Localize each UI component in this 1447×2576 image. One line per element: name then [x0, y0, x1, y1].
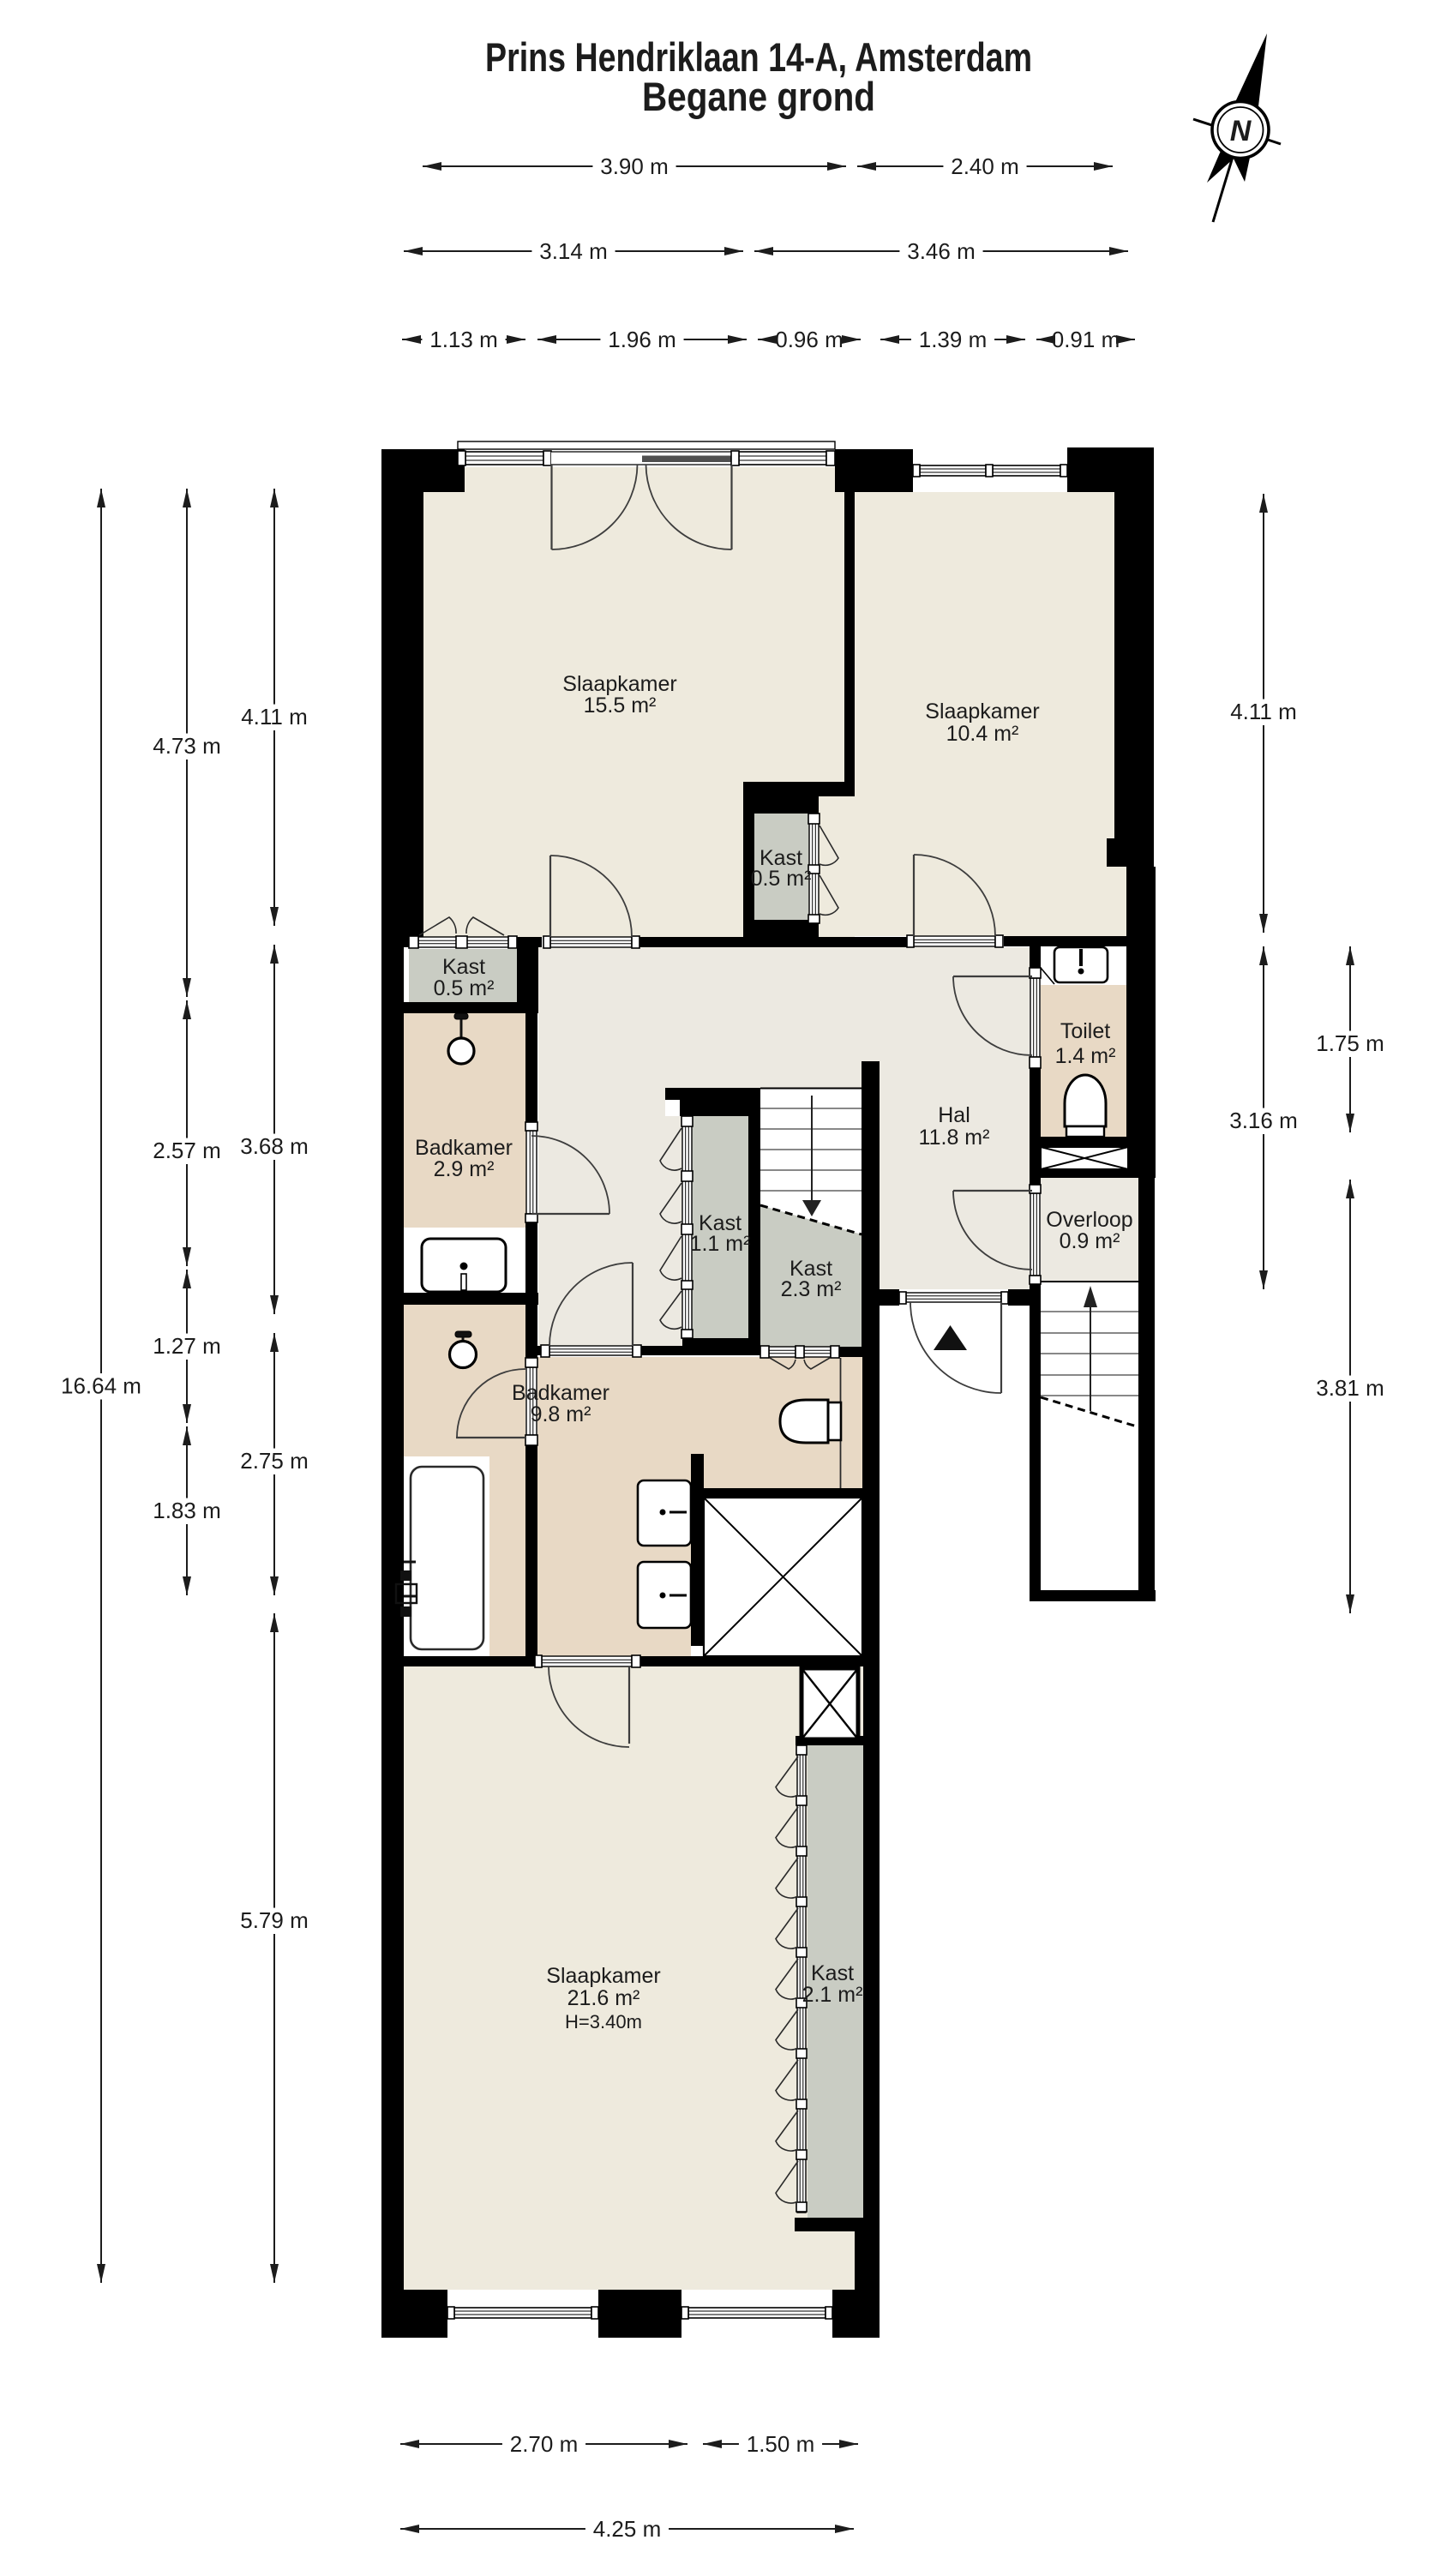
svg-text:10.4 m²: 10.4 m²: [946, 722, 1019, 746]
svg-text:H=3.40m: H=3.40m: [565, 2011, 642, 2033]
svg-text:Hal: Hal: [938, 1103, 970, 1127]
svg-text:Kast: Kast: [442, 955, 485, 979]
svg-text:N: N: [1230, 115, 1252, 147]
svg-text:1.75 m: 1.75 m: [1316, 1030, 1384, 1056]
svg-text:Slaapkamer: Slaapkamer: [546, 1964, 660, 1988]
svg-text:2.57 m: 2.57 m: [153, 1138, 221, 1163]
svg-text:3.81 m: 3.81 m: [1316, 1375, 1384, 1401]
svg-text:4.11 m: 4.11 m: [241, 704, 308, 730]
svg-text:1.27 m: 1.27 m: [153, 1333, 221, 1359]
svg-text:0.96 m: 0.96 m: [775, 327, 844, 352]
svg-text:1.1 m²: 1.1 m²: [690, 1232, 751, 1256]
svg-text:3.46 m: 3.46 m: [907, 238, 976, 264]
svg-text:1.50 m: 1.50 m: [747, 2431, 815, 2457]
svg-text:9.8 m²: 9.8 m²: [531, 1402, 591, 1426]
svg-text:Toilet: Toilet: [1060, 1019, 1110, 1043]
svg-text:11.8 m²: 11.8 m²: [919, 1126, 990, 1150]
svg-text:1.96 m: 1.96 m: [608, 327, 676, 352]
svg-text:Badkamer: Badkamer: [512, 1381, 609, 1405]
svg-text:Overloop: Overloop: [1046, 1208, 1132, 1232]
svg-text:2.1 m²: 2.1 m²: [802, 1983, 863, 2007]
svg-text:0.5 m²: 0.5 m²: [434, 976, 495, 1000]
svg-text:2.3 m²: 2.3 m²: [781, 1277, 842, 1301]
svg-text:2.9 m²: 2.9 m²: [434, 1157, 495, 1181]
svg-text:2.75 m: 2.75 m: [240, 1448, 309, 1474]
svg-text:0.5 m²: 0.5 m²: [751, 867, 812, 891]
svg-text:3.90 m: 3.90 m: [600, 153, 669, 179]
svg-text:2.70 m: 2.70 m: [510, 2431, 579, 2457]
svg-text:5.79 m: 5.79 m: [240, 1907, 309, 1933]
svg-text:21.6 m²: 21.6 m²: [567, 1986, 640, 2010]
svg-text:3.68 m: 3.68 m: [240, 1133, 309, 1159]
svg-text:0.9 m²: 0.9 m²: [1060, 1229, 1120, 1253]
svg-text:1.83 m: 1.83 m: [153, 1498, 221, 1523]
svg-text:3.16 m: 3.16 m: [1229, 1108, 1298, 1133]
svg-text:16.64 m: 16.64 m: [61, 1372, 141, 1398]
svg-text:Badkamer: Badkamer: [415, 1136, 513, 1160]
svg-text:1.13 m: 1.13 m: [429, 327, 498, 352]
svg-text:Slaapkamer: Slaapkamer: [562, 672, 676, 696]
svg-text:3.14 m: 3.14 m: [539, 238, 608, 264]
svg-text:4.73 m: 4.73 m: [153, 733, 221, 759]
svg-text:4.25 m: 4.25 m: [593, 2516, 662, 2542]
svg-text:2.40 m: 2.40 m: [951, 153, 1019, 179]
svg-text:1.4 m²: 1.4 m²: [1055, 1044, 1116, 1068]
svg-text:Begane grond: Begane grond: [642, 74, 875, 119]
svg-text:15.5 m²: 15.5 m²: [584, 694, 657, 718]
svg-text:0.91 m: 0.91 m: [1052, 327, 1120, 352]
svg-text:4.11 m: 4.11 m: [1230, 699, 1297, 724]
svg-text:Slaapkamer: Slaapkamer: [925, 700, 1039, 724]
svg-text:1.39 m: 1.39 m: [919, 327, 988, 352]
svg-text:Kast: Kast: [811, 1961, 854, 1985]
